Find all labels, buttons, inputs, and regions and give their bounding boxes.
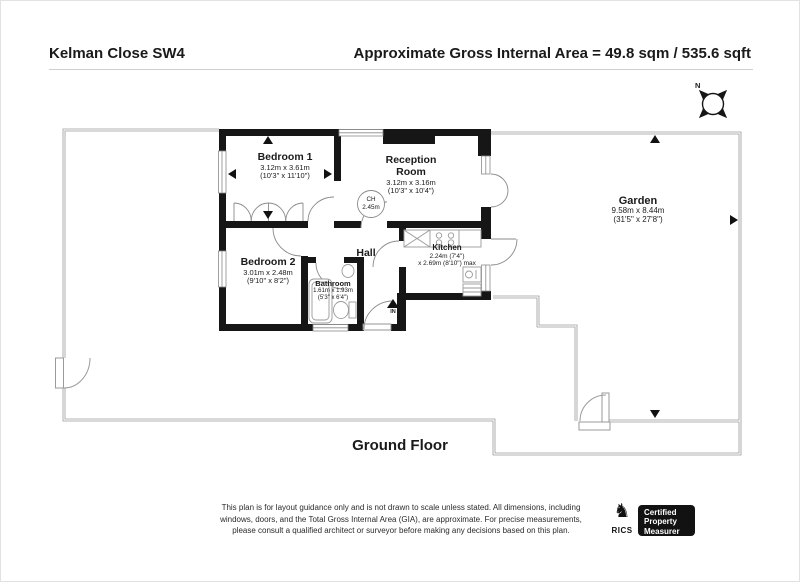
floorplan-drawing <box>1 1 800 582</box>
disclaimer-text: This plan is for layout guidance only an… <box>166 502 636 537</box>
garden-gate-left <box>56 358 91 388</box>
compass-icon <box>699 90 727 118</box>
bedroom1-arrow-up <box>263 136 273 144</box>
rics-badge: Certified Property Measurer <box>638 505 695 536</box>
garden-label: Garden 9.58m x 8.44m (31'5" x 27'8") <box>612 195 665 225</box>
floorplan-page: Kelman Close SW4 Approximate Gross Inter… <box>0 0 800 582</box>
rics-certification-logo: ♞ RICS Certified Property Measurer <box>607 503 707 543</box>
hall-label: Hall <box>356 248 375 260</box>
ceiling-height-label: CH 2.45m <box>362 196 380 211</box>
bathroom-label: Bathroom 1.61m x 1.93m (5'3" x 6'4") <box>313 280 353 302</box>
garden-arrow-right <box>730 215 738 225</box>
floor-title: Ground Floor <box>352 437 448 454</box>
kitchen-label: Kitchen 2.24m (7'4") x 2.69m (8'10") max <box>418 244 476 267</box>
garden-gate-right <box>579 393 610 430</box>
garden-arrow-down <box>650 410 660 418</box>
bedroom1-label: Bedroom 1 3.12m x 3.61m (10'3" x 11'10") <box>258 152 313 181</box>
rics-lion-icon: ♞ <box>613 500 630 523</box>
toilet-bowl <box>334 302 349 319</box>
toilet-tank <box>349 302 356 318</box>
compass-north-label: N <box>695 81 700 90</box>
sink <box>342 265 354 278</box>
entrance-label: IN <box>390 309 396 315</box>
bedroom1-arrow-left <box>228 169 236 179</box>
garden-arrow-up <box>650 135 660 143</box>
rics-brand: RICS <box>611 526 632 535</box>
bedroom1-arrow-down <box>263 211 273 219</box>
bedroom2-label: Bedroom 2 3.01m x 2.48m (9'10" x 8'2") <box>241 257 296 286</box>
bedroom1-arrow-right <box>324 169 332 179</box>
reception-label: Reception Room 3.12m x 3.16m (10'3" x 10… <box>386 155 437 195</box>
